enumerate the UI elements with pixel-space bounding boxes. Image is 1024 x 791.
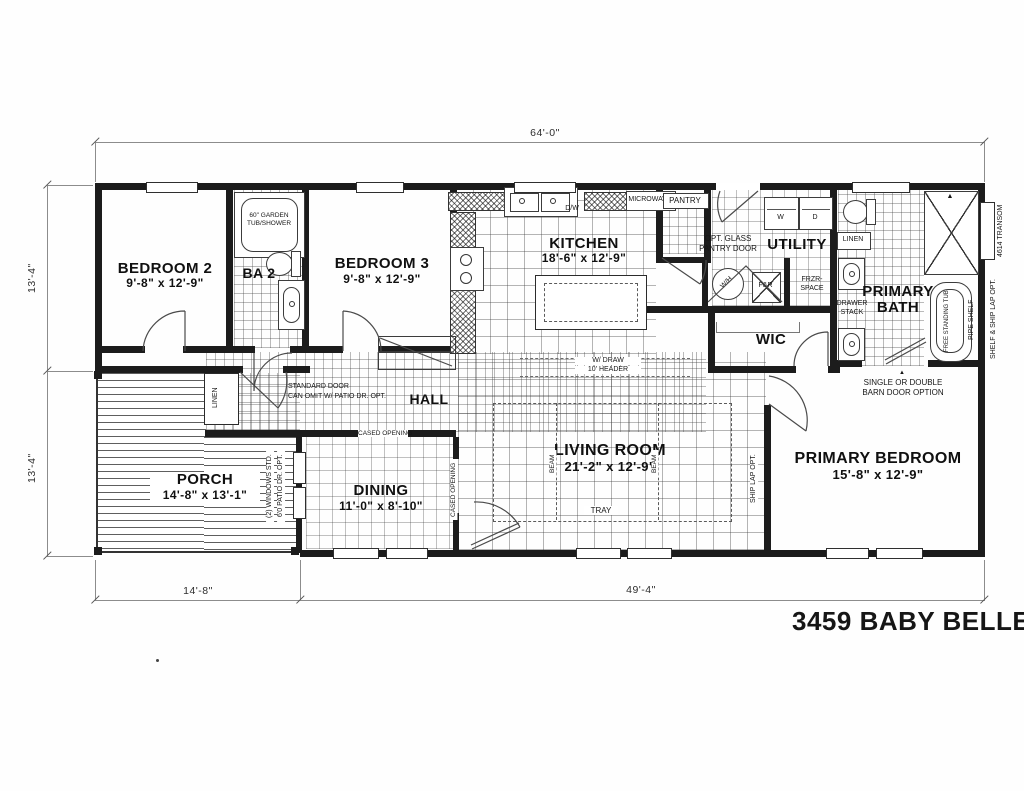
barn-door	[885, 338, 926, 364]
primary-bedroom-label: PRIMARY BEDROOM	[788, 450, 968, 468]
closet-door	[378, 338, 454, 366]
std-door-note-line1: STANDARD DOOR	[288, 383, 398, 391]
dim-ext	[47, 371, 93, 372]
beam-label-left: BEAM	[549, 450, 556, 478]
door-arc	[471, 502, 520, 549]
hall-label: HALL	[400, 392, 458, 408]
dining-size: 11'-0" x 8'-10"	[321, 500, 441, 513]
scan-artifact-dot	[156, 659, 159, 662]
floor-plan: D/W MICROWAVE PANTRY W D UTILITY OPT. GL…	[0, 0, 1024, 791]
dim-bottom-right-label: 49'-4"	[598, 584, 684, 596]
door-arc	[343, 311, 381, 351]
windows-std-label: (2) WINDOWS STD.	[266, 448, 274, 524]
std-door-note-line2: CAN OMIT W/ PATIO DR. OPT.	[288, 393, 398, 401]
dim-left-upper-label: 13'-4"	[26, 248, 38, 308]
dim-ext	[47, 556, 93, 557]
dim-ext	[47, 185, 93, 186]
dim-ext	[984, 560, 985, 600]
dim-ext	[95, 142, 96, 182]
cased-opening-side-label: CASED OPENING	[450, 460, 457, 520]
dining-label: DINING	[321, 483, 441, 500]
door-arc	[794, 332, 828, 366]
door-arc	[143, 311, 185, 351]
dim-left-lower-label: 13'-4"	[26, 438, 38, 498]
ba2-label: BA 2	[236, 266, 282, 282]
header-note-line2: 10' HEADER	[575, 366, 641, 374]
door-arc	[240, 372, 287, 408]
dim-bottom-left-label: 14'-8"	[155, 585, 241, 597]
bedroom3-size: 9'-8" x 12'-9"	[320, 273, 444, 286]
primary-bedroom-size: 15'-8" x 12'-9"	[788, 468, 968, 483]
beam-label-right: BEAM	[651, 450, 658, 478]
kitchen-size: 18'-6" x 12'-9"	[514, 252, 654, 265]
door-arc	[769, 376, 807, 431]
patio-dr-label: 6'0 PATIO DR. OPT.	[277, 448, 285, 524]
dim-line-bottom	[95, 600, 985, 601]
bedroom3-label: BEDROOM 3	[320, 256, 444, 273]
porch-label: PORCH	[150, 472, 260, 489]
porch-size: 14'-8" x 13'-1"	[150, 489, 260, 502]
dim-ext	[300, 560, 301, 600]
header-note-line1: W/ DRAW	[575, 357, 641, 365]
dim-top-label: 64'-0"	[500, 127, 590, 139]
plan-title: 3459 BABY BELLE	[792, 606, 1024, 637]
bedroom2-size: 9'-8" x 12'-9"	[105, 277, 225, 290]
door-swings-layer	[0, 0, 1024, 791]
dim-line-top	[95, 142, 985, 143]
dim-ext	[984, 142, 985, 182]
door-arc	[662, 258, 706, 284]
ship-lap-label: SHIP LAP OPT.	[750, 448, 758, 510]
cased-opening-top-label: CASED OPENING	[358, 430, 408, 437]
bifold-doors	[708, 266, 782, 302]
tray-label: TRAY	[584, 506, 618, 515]
door-arc	[718, 191, 758, 222]
dim-ext	[95, 560, 96, 600]
